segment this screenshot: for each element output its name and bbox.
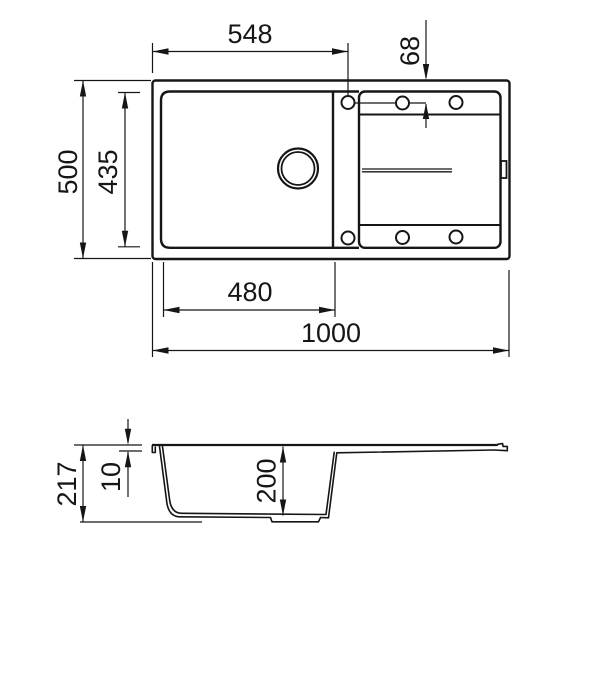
dim-arrow xyxy=(80,81,86,97)
dim-arrow xyxy=(125,429,131,445)
tap-hole xyxy=(450,231,463,244)
tap-hole xyxy=(342,232,355,245)
bowl-floor-outer-and-right-wall xyxy=(180,450,494,522)
dim-arrow xyxy=(319,307,335,313)
dim-arrow xyxy=(164,307,180,313)
dim-label-1000: 1000 xyxy=(301,318,361,348)
dim-label-548: 548 xyxy=(227,19,272,49)
dim-arrow xyxy=(493,347,509,353)
dim-arrow xyxy=(153,347,169,353)
dim-548: 548 xyxy=(153,19,349,95)
dim-label-480: 480 xyxy=(227,277,272,307)
tap-hole xyxy=(342,96,355,109)
dim-label-435: 435 xyxy=(93,149,123,194)
dim-arrow xyxy=(332,48,348,54)
dim-arrow xyxy=(122,231,128,247)
bowl-left-wall-inner xyxy=(163,447,183,514)
section-view xyxy=(80,444,507,522)
tap-hole xyxy=(450,96,463,109)
dim-arrow xyxy=(80,445,86,461)
dim-label-217: 217 xyxy=(52,461,82,506)
dim-label-10: 10 xyxy=(96,462,126,492)
section-left-rim-edge xyxy=(152,446,155,453)
bowl-left-wall-outer xyxy=(160,447,181,517)
dim-arrow xyxy=(80,243,86,259)
overflow-mark xyxy=(501,161,507,178)
plan-view xyxy=(153,81,510,260)
dim-480: 480 xyxy=(164,262,336,317)
sink-technical-drawing: 548 68 500 435 480 xyxy=(0,0,600,689)
dim-200: 200 xyxy=(252,447,287,516)
drain-inner-circle xyxy=(282,152,315,185)
dim-435: 435 xyxy=(93,93,140,247)
dim-label-200: 200 xyxy=(252,458,282,503)
dim-arrow xyxy=(423,103,429,119)
dim-arrow xyxy=(122,93,128,109)
dim-arrow xyxy=(80,506,86,522)
dim-label-68: 68 xyxy=(395,36,425,66)
dim-10: 10 xyxy=(96,419,142,497)
dim-arrow xyxy=(153,48,169,54)
bowl-outline xyxy=(161,92,333,248)
drain-outer-circle xyxy=(278,149,318,189)
tap-hole xyxy=(396,97,409,110)
dim-label-500: 500 xyxy=(53,149,83,194)
tap-hole xyxy=(396,231,409,244)
drawing-canvas: 548 68 500 435 480 xyxy=(0,0,600,689)
dim-68: 68 xyxy=(395,20,429,128)
